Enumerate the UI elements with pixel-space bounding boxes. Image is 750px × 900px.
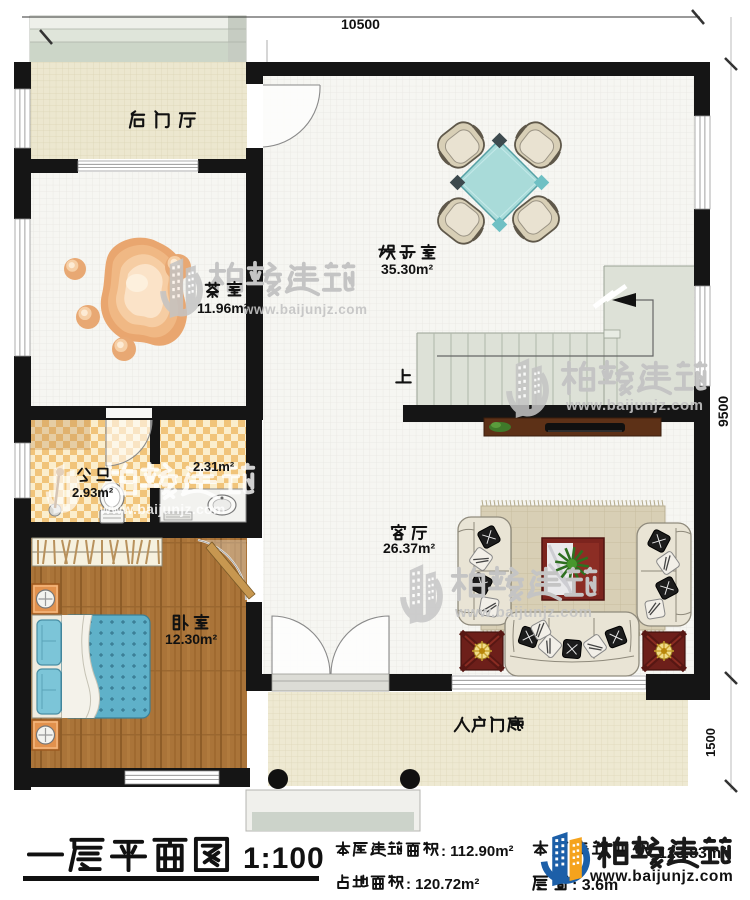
svg-text:26.37m²: 26.37m² — [383, 540, 435, 556]
svg-text:2.93m²: 2.93m² — [72, 485, 114, 500]
svg-text:2.31m²: 2.31m² — [193, 459, 235, 474]
svg-text:11.96m²: 11.96m² — [197, 300, 249, 316]
svg-text:10500: 10500 — [341, 16, 380, 32]
svg-text:www.baijunjz.com: www.baijunjz.com — [565, 397, 703, 414]
svg-text:: 112.90m²: : 112.90m² — [441, 843, 514, 860]
svg-text:35.30m²: 35.30m² — [381, 261, 433, 277]
svg-text:9500: 9500 — [715, 396, 731, 427]
svg-text:www.baijunjz.com: www.baijunjz.com — [589, 868, 733, 885]
svg-text:: 120.72m²: : 120.72m² — [406, 876, 479, 893]
svg-text:12.30m²: 12.30m² — [165, 631, 217, 647]
svg-text:www.baijunjz.com: www.baijunjz.com — [242, 302, 368, 317]
svg-text:www.baijunjz.com: www.baijunjz.com — [454, 604, 592, 621]
svg-text:1500: 1500 — [703, 728, 718, 757]
svg-text:1:100: 1:100 — [243, 842, 325, 875]
svg-text:www.baijunjz.com: www.baijunjz.com — [99, 501, 226, 517]
